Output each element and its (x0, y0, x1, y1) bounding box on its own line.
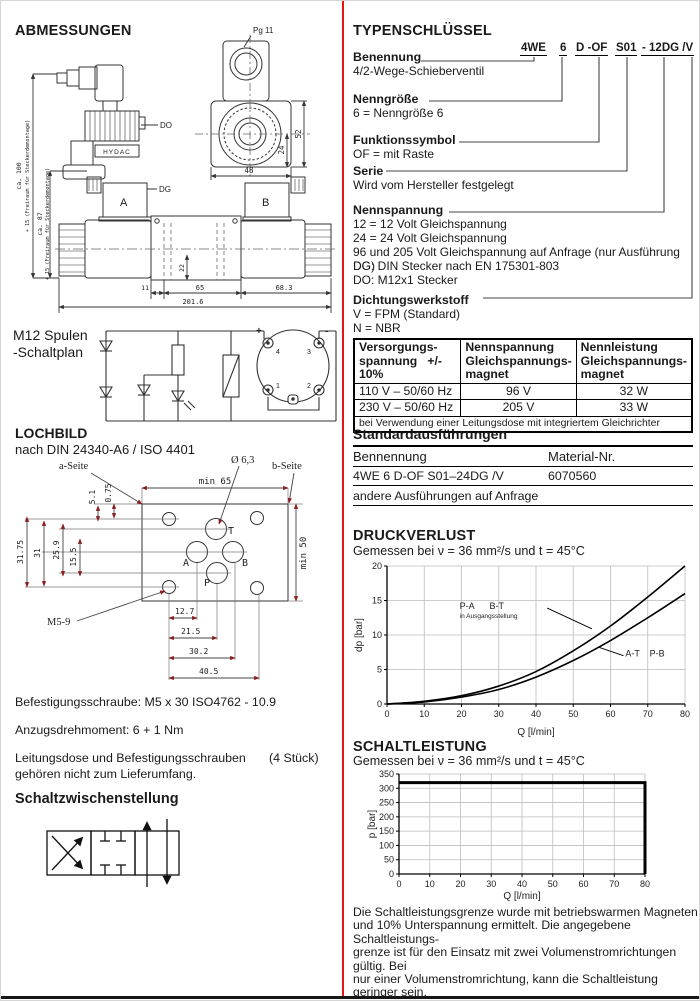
m5-label: M5-9 (47, 617, 70, 628)
dim-15-5: 15.5 (69, 547, 78, 566)
dim-0-75: 0.75 (104, 483, 113, 502)
m12-pin1-label: 1 (276, 383, 280, 390)
svg-text:50: 50 (548, 879, 558, 889)
m12-pin3-label: 3 (307, 349, 311, 356)
schaltleistung-subtitle: Gemessen bei ν = 36 mm²/s und t = 45°C (353, 754, 585, 768)
port-t-label: T (228, 526, 234, 537)
standard-row-nr: 6070560 (548, 469, 596, 483)
svg-text:70: 70 (643, 709, 653, 719)
section-nennspannung-l2: 24 = 24 Volt Gleichspannung (353, 231, 507, 245)
section-funktionssymbol-label: Funktionssymbol (353, 133, 456, 147)
druckverlust-subtitle: Gemessen bei ν = 36 mm²/s und t = 45°C (353, 544, 585, 558)
svg-text:80: 80 (640, 879, 650, 889)
dim-65: 65 (196, 284, 204, 292)
b-seite-label: b-Seite (272, 461, 302, 472)
svg-text:40: 40 (531, 709, 541, 719)
svg-text:P-A: P-A (460, 601, 475, 611)
svg-text:300: 300 (379, 783, 394, 793)
schaltleistung-plot: 01020304050607080050100150200250300350Q … (353, 768, 697, 902)
port-b-label: B (242, 558, 248, 569)
table-header-row: Versorgungs- spannung +/- 10% Nennspannu… (354, 339, 692, 383)
svg-text:20: 20 (456, 709, 466, 719)
svg-text:P-B: P-B (650, 648, 665, 658)
anzugsmoment-note: Anzugsdrehmoment: 6 + 1 Nm (15, 723, 183, 737)
dim-25-9: 25.9 (52, 540, 61, 559)
m12-minus-label: - (325, 326, 328, 337)
section-dichtung-label: Dichtungswerkstoff (353, 293, 469, 307)
dim-48: 48 (244, 166, 254, 175)
lochbild-title: LOCHBILD (15, 425, 87, 441)
svg-text:0: 0 (389, 869, 394, 879)
port-p-label: P (204, 578, 210, 589)
leitungsdose-qty: (4 Stück) (269, 751, 319, 765)
pg11-label: Pg 11 (253, 26, 274, 35)
svg-text:10: 10 (419, 709, 429, 719)
dim-201-6: 201.6 (182, 298, 203, 306)
svg-text:10: 10 (372, 630, 382, 640)
m12-pin2-label: 2 (307, 383, 311, 390)
hydac-logo: HYDAC (103, 149, 131, 156)
dim-30-2: 30.2 (189, 647, 208, 656)
dim-ca87: ca. 87 (36, 212, 44, 236)
lochbild-drawing: a-Seite Ø 6,3 b-Seite M5-9 min 65 min 50… (9, 453, 339, 688)
dim-ca100-note: + 15 (Freiraum für Steckerdemontage) (25, 120, 31, 232)
svg-text:50: 50 (568, 709, 578, 719)
valve-symbol-drawing (29, 811, 204, 906)
header-versorgung: Versorgungs- spannung +/- 10% (354, 339, 461, 383)
dim-ca87-note: + 15 (Freiraum für Steckerdemontage) (45, 168, 51, 280)
leitungsdose-note-line2: gehören nicht zum Lieferumfang. (15, 767, 196, 781)
header-nennspannung: Nennspannung Gleichspannungs- magnet (461, 339, 576, 383)
leitungsdose-note-line1: Leitungsdose und Befestigungsschrauben (15, 751, 246, 765)
do-label: DO (160, 121, 172, 130)
m12-pin4-label: 4 (276, 349, 280, 356)
dim-ca100: ca. 100 (15, 162, 23, 189)
dim-40-5: 40.5 (199, 667, 218, 676)
schaltzwischenstellung-title: Schaltzwischenstellung (15, 791, 179, 807)
section-nennspannung-label: Nennspannung (353, 203, 443, 217)
dim-21-5: 21.5 (181, 627, 200, 636)
svg-text:5: 5 (377, 665, 382, 675)
standard-note: andere Ausführungen auf Anfrage (353, 489, 538, 503)
typenschluessel-title: TYPENSCHLÜSSEL (353, 23, 492, 39)
dim-22: 22 (178, 264, 186, 272)
dim-min50: min 50 (299, 537, 309, 570)
svg-text:10: 10 (425, 879, 435, 889)
dim-31: 31 (33, 548, 42, 558)
voltage-table: Versorgungs- spannung +/- 10% Nennspannu… (353, 338, 693, 433)
svg-text:70: 70 (609, 879, 619, 889)
svg-text:30: 30 (486, 879, 496, 889)
schaltleistung-title: SCHALTLEISTUNG (353, 739, 487, 755)
standard-col2-header: Material-Nr. (548, 449, 615, 464)
dim-min65: min 65 (199, 477, 232, 487)
svg-text:0: 0 (377, 699, 382, 709)
dim-12-7: 12.7 (175, 607, 194, 616)
svg-text:200: 200 (379, 812, 394, 822)
port-a-label: A (183, 558, 189, 569)
section-serie-text: Wird vom Hersteller festgelegt (353, 178, 514, 192)
valve-dimension-drawing: Pg 11 DO DG HYDAC A B 48 52 24 ca. 100 +… (1, 17, 341, 317)
svg-text:dp [bar]: dp [bar] (354, 618, 365, 652)
dim-5-1: 5.1 (88, 490, 97, 505)
svg-text:Q [l/min]: Q [l/min] (517, 727, 554, 738)
section-nennspannung-l5: DO: M12x1 Stecker (353, 273, 458, 287)
svg-text:p [bar]: p [bar] (367, 810, 378, 839)
footnote: Die Schaltleistungsgrenze wurde mit betr… (353, 906, 698, 1001)
svg-text:0: 0 (384, 709, 389, 719)
svg-text:0: 0 (396, 879, 401, 889)
section-dichtung-l2: N = NBR (353, 321, 401, 335)
svg-text:150: 150 (379, 826, 394, 836)
standard-col1-header: Bennennung (353, 449, 427, 464)
standard-rule-3 (353, 505, 693, 506)
schaltleistung-chart: 01020304050607080050100150200250300350Q … (353, 768, 697, 902)
standard-rule-2 (353, 485, 693, 486)
table-row: 230 V – 50/60 Hz 205 V 33 W (354, 400, 692, 417)
standard-title: Standardausführungen (353, 426, 507, 442)
column-divider (342, 1, 344, 996)
svg-text:30: 30 (494, 709, 504, 719)
table-row: 110 V – 50/60 Hz 96 V 32 W (354, 383, 692, 400)
befestigung-note: Befestigungsschraube: M5 x 30 ISO4762 - … (15, 695, 276, 709)
dim-52: 52 (294, 129, 303, 138)
svg-text:80: 80 (680, 709, 690, 719)
standard-rule-1 (353, 466, 693, 467)
druckverlust-plot: 0102030405060708005101520P-AB-Tin Ausgan… (353, 558, 697, 738)
svg-text:in Ausgangsstellung: in Ausgangsstellung (460, 613, 518, 620)
svg-text:B-T: B-T (489, 601, 504, 611)
section-nenngroesse-text: 6 = Nenngröße 6 (353, 106, 443, 120)
svg-text:15: 15 (372, 596, 382, 606)
svg-text:60: 60 (605, 709, 615, 719)
svg-text:50: 50 (384, 855, 394, 865)
section-funktionssymbol-text: OF = mit Raste (353, 147, 434, 161)
dim-11: 11 (141, 284, 149, 292)
dg-label: DG (159, 185, 171, 194)
svg-text:A-T: A-T (625, 648, 640, 658)
svg-text:20: 20 (455, 879, 465, 889)
svg-text:100: 100 (379, 840, 394, 850)
datasheet-page: ABMESSUNGEN (0, 0, 700, 1001)
section-benennung-label: Benennung (353, 50, 421, 64)
svg-text:250: 250 (379, 798, 394, 808)
section-dichtung-l1: V = FPM (Standard) (353, 307, 460, 321)
section-nennspannung-l4: DG: DIN Stecker nach EN 175301-803 (353, 259, 559, 273)
dim-68-3: 68.3 (276, 284, 293, 292)
standard-row-name: 4WE 6 D-OF S01–24DG /V (353, 469, 504, 483)
svg-text:Q [l/min]: Q [l/min] (503, 891, 540, 902)
svg-text:20: 20 (372, 561, 382, 571)
svg-text:60: 60 (578, 879, 588, 889)
druckverlust-chart: 0102030405060708005101520P-AB-Tin Ausgan… (353, 558, 697, 738)
dim-24: 24 (277, 145, 286, 155)
standard-rule-top (353, 445, 693, 447)
a-seite-label: a-Seite (59, 461, 88, 472)
section-nennspannung-l1: 12 = 12 Volt Gleichspannung (353, 217, 507, 231)
section-benennung-text: 4/2-Wege-Schieberventil (353, 64, 484, 78)
druckverlust-title: DRUCKVERLUST (353, 528, 475, 544)
svg-text:40: 40 (517, 879, 527, 889)
dim-31-75: 31.75 (16, 540, 25, 564)
solenoid-a-label: A (120, 197, 128, 209)
svg-text:350: 350 (379, 769, 394, 779)
m12-plus-label: + (256, 326, 262, 337)
header-nennleistung: Nennleistung Gleichspannungs- magnet (576, 339, 692, 383)
diameter-label: Ø 6,3 (231, 455, 254, 466)
m12-schaltplan-label: M12 Spulen -Schaltplan (13, 327, 88, 361)
section-serie-label: Serie (353, 164, 383, 178)
section-nenngroesse-label: Nenngröße (353, 92, 418, 106)
solenoid-b-label: B (262, 197, 269, 209)
m12-circuit-diagram: + - 4 3 1 2 (96, 317, 341, 433)
